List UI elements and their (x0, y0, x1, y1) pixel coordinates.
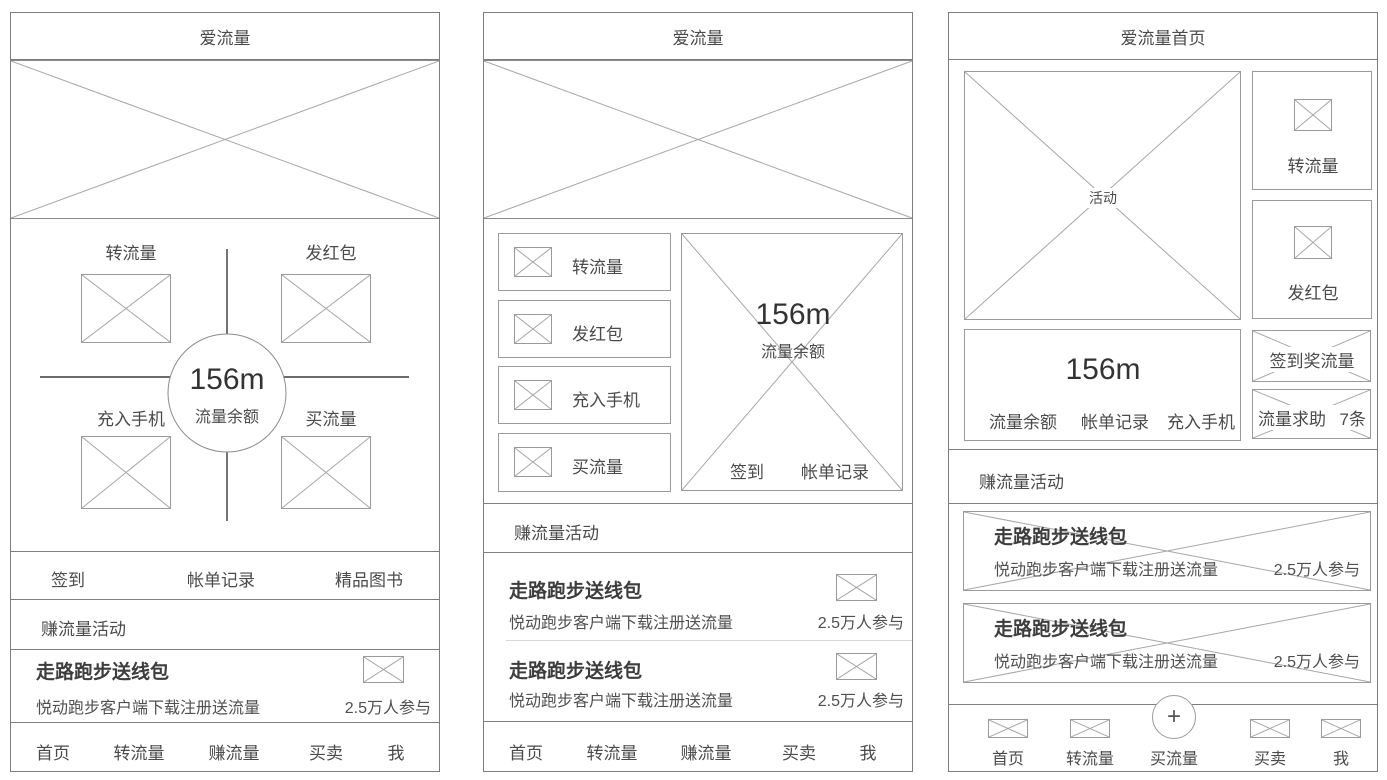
banner-label: 活动 (1084, 188, 1122, 208)
quick-links-row: 签到 帐单记录 精品图书 (11, 551, 439, 599)
nav-transfer[interactable]: 转流量 (1066, 745, 1114, 769)
x-placeholder-icon (515, 315, 551, 343)
link-premium-books[interactable]: 精品图书 (335, 566, 403, 591)
activity-participants: 2.5万人参与 (818, 687, 904, 711)
titlebar: 爱流量 (484, 13, 912, 60)
menu-buy-button[interactable]: 买流量 (498, 433, 671, 492)
traffic-help-label: 流量求助 (1258, 410, 1326, 429)
activity-thumb-placeholder (363, 656, 404, 683)
x-placeholder-icon (1251, 720, 1289, 737)
balance-card: 156m 流量余额 签到 帐单记录 (681, 233, 903, 491)
earn-section-header: 赚流量活动 (11, 599, 439, 649)
side-transfer-button[interactable]: 转流量 (1252, 71, 1372, 190)
earn-section-header: 赚流量活动 (949, 449, 1377, 504)
activity-title: 走路跑步送线包 (994, 614, 1127, 641)
activity-thumb-placeholder (836, 574, 877, 601)
activity-card[interactable]: 走路跑步送线包 悦动跑步客户端下载注册送流量 2.5万人参与 (963, 603, 1371, 683)
banner-image-placeholder (11, 60, 439, 219)
home-nav-icon[interactable] (988, 719, 1028, 738)
nav-home[interactable]: 首页 (509, 739, 543, 764)
screen-home-final: 爱流量首页 活动 转流量 发红包 156m 流量余额 帐单记录 充入手机 签到奖… (948, 12, 1378, 772)
x-placeholder-icon (682, 234, 902, 490)
section-header-label: 赚流量活动 (514, 519, 599, 544)
activity-title: 走路跑步送线包 (509, 656, 642, 683)
nav-trade[interactable]: 买卖 (1254, 745, 1286, 769)
traffic-help-group: 流量求助 7条 (1253, 405, 1371, 430)
x-placeholder-icon (82, 437, 170, 508)
screen-home-v2: 爱流量 转流量 发红包 充入手机 买流量 156m 流量余额 签到 帐单记录 (483, 12, 913, 772)
side-action-label: 发红包 (1288, 279, 1339, 304)
nav-me[interactable]: 我 (860, 739, 877, 764)
activity-thumb-placeholder (836, 653, 877, 680)
link-signin[interactable]: 签到 (730, 458, 764, 483)
x-placeholder-icon (989, 720, 1027, 737)
menu-label: 转流量 (572, 253, 623, 278)
x-placeholder-icon (837, 654, 876, 679)
fab-buy-button[interactable]: + (1152, 695, 1196, 739)
titlebar: 爱流量首页 (949, 13, 1377, 60)
earn-section-header: 赚流量活动 (484, 503, 912, 553)
x-placeholder-icon (282, 437, 370, 508)
activity-card[interactable]: 走路跑步送线包 悦动跑步客户端下载注册送流量 2.5万人参与 (963, 511, 1371, 591)
balance-label: 流量余额 (761, 338, 825, 362)
activity-participants: 2.5万人参与 (345, 694, 431, 718)
action-label-redpacket: 发红包 (306, 239, 357, 264)
x-placeholder-icon (515, 381, 551, 409)
menu-label: 买流量 (572, 453, 623, 478)
bottom-nav: + 首页 转流量 买流量 买卖 我 (949, 704, 1377, 773)
balance-value: 156m (755, 298, 830, 332)
activity-row[interactable]: 走路跑步送线包 悦动跑步客户端下载注册送流量 2.5万人参与 (484, 553, 912, 640)
x-placeholder-icon (1071, 720, 1109, 737)
balance-label: 流量余额 (195, 403, 259, 427)
activity-participants: 2.5万人参与 (1274, 648, 1360, 672)
nav-trade[interactable]: 买卖 (309, 739, 343, 764)
menu-recharge-button[interactable]: 充入手机 (498, 366, 671, 424)
section-header-label: 赚流量活动 (979, 468, 1064, 493)
nav-home[interactable]: 首页 (36, 739, 70, 764)
redpacket-image-placeholder[interactable] (281, 274, 371, 343)
activity-title: 走路跑步送线包 (509, 576, 642, 603)
activity-card[interactable]: 走路跑步送线包 悦动跑步客户端下载注册送流量 2.5万人参与 (11, 649, 439, 722)
side-action-label: 转流量 (1288, 152, 1339, 177)
bottom-nav: 首页 转流量 赚流量 买卖 我 (484, 721, 912, 773)
page-title: 爱流量 (200, 24, 251, 49)
menu-label: 发红包 (572, 320, 623, 345)
quad-action-section: 转流量 发红包 156m 流量余额 充入手机 买流量 (11, 219, 439, 551)
nav-me[interactable]: 我 (388, 739, 405, 764)
side-redpacket-button[interactable]: 发红包 (1252, 200, 1372, 319)
nav-me[interactable]: 我 (1333, 745, 1349, 769)
x-placeholder-icon (837, 575, 876, 600)
x-placeholder-icon (515, 448, 551, 476)
nav-transfer[interactable]: 转流量 (587, 739, 638, 764)
activity-participants: 2.5万人参与 (1274, 556, 1360, 580)
activity-desc: 悦动跑步客户端下载注册送流量 (509, 687, 733, 711)
activity-desc: 悦动跑步客户端下载注册送流量 (994, 556, 1218, 580)
activity-banner-placeholder[interactable]: 活动 (964, 71, 1241, 320)
balance-card: 156m 流量余额 帐单记录 充入手机 (964, 329, 1241, 441)
redpacket-icon-placeholder (514, 314, 552, 344)
screen-home-v1: 爱流量 转流量 发红包 156m 流量余额 充入手机 买流量 签到 帐单记录 (10, 12, 440, 772)
link-balance[interactable]: 流量余额 (989, 408, 1057, 433)
x-placeholder-icon (1322, 720, 1360, 737)
bottom-nav: 首页 转流量 赚流量 买卖 我 (11, 722, 439, 773)
recharge-image-placeholder[interactable] (81, 436, 171, 509)
wireframe-canvas: 爱流量 转流量 发红包 156m 流量余额 充入手机 买流量 签到 帐单记录 (0, 0, 1387, 780)
transfer-nav-icon[interactable] (1070, 719, 1110, 738)
action-label-buy: 买流量 (306, 405, 357, 430)
buy-icon-placeholder (514, 447, 552, 477)
balance-value: 156m (189, 363, 264, 397)
x-placeholder-icon (515, 248, 551, 276)
link-recharge[interactable]: 充入手机 (1167, 408, 1235, 433)
signin-reward-button[interactable]: 签到奖流量 (1252, 330, 1371, 382)
trade-nav-icon[interactable] (1250, 719, 1290, 738)
activity-desc: 悦动跑步客户端下载注册送流量 (994, 648, 1218, 672)
action-label-recharge: 充入手机 (97, 405, 165, 430)
buy-image-placeholder[interactable] (281, 436, 371, 509)
menu-redpacket-button[interactable]: 发红包 (498, 300, 671, 358)
link-signin[interactable]: 签到 (51, 566, 85, 591)
me-nav-icon[interactable] (1321, 719, 1361, 738)
transfer-icon-placeholder (1294, 99, 1332, 131)
recharge-icon-placeholder (514, 380, 552, 410)
plus-icon: + (1167, 703, 1181, 731)
activity-desc: 悦动跑步客户端下载注册送流量 (509, 609, 733, 633)
titlebar: 爱流量 (11, 13, 439, 60)
nav-home[interactable]: 首页 (992, 745, 1024, 769)
transfer-icon-placeholder (514, 247, 552, 277)
link-bill-records[interactable]: 帐单记录 (1081, 408, 1149, 433)
nav-trade[interactable]: 买卖 (782, 739, 816, 764)
menu-label: 充入手机 (572, 386, 640, 411)
activity-desc: 悦动跑步客户端下载注册送流量 (36, 694, 260, 718)
x-placeholder-icon (364, 657, 403, 682)
redpacket-icon-placeholder (1294, 226, 1332, 259)
banner-image-placeholder (484, 60, 912, 219)
menu-transfer-button[interactable]: 转流量 (498, 233, 671, 291)
transfer-image-placeholder[interactable] (81, 274, 171, 343)
link-bill-records[interactable]: 帐单记录 (801, 458, 869, 483)
action-label-transfer: 转流量 (106, 239, 157, 264)
help-count-badge: 7条 (1339, 410, 1365, 429)
x-placeholder-icon (1295, 100, 1331, 130)
page-title: 爱流量首页 (1121, 24, 1206, 49)
nav-earn[interactable]: 赚流量 (209, 739, 260, 764)
section-header-label: 赚流量活动 (41, 615, 126, 640)
nav-buy[interactable]: 买流量 (1150, 745, 1198, 769)
activity-participants: 2.5万人参与 (818, 609, 904, 633)
activity-title: 走路跑步送线包 (36, 657, 169, 684)
activity-row[interactable]: 走路跑步送线包 悦动跑步客户端下载注册送流量 2.5万人参与 (484, 641, 912, 721)
x-placeholder-icon (1295, 227, 1331, 258)
nav-earn[interactable]: 赚流量 (681, 739, 732, 764)
activity-title: 走路跑步送线包 (994, 522, 1127, 549)
balance-value: 156m (1065, 353, 1140, 387)
page-title: 爱流量 (673, 24, 724, 49)
signin-reward-label: 签到奖流量 (1265, 347, 1360, 372)
x-placeholder-icon (11, 61, 439, 218)
nav-transfer[interactable]: 转流量 (114, 739, 165, 764)
x-placeholder-icon (282, 275, 370, 342)
link-bill-records[interactable]: 帐单记录 (187, 566, 255, 591)
traffic-help-button[interactable]: 流量求助 7条 (1252, 389, 1371, 439)
x-placeholder-icon (82, 275, 170, 342)
x-placeholder-icon (484, 61, 912, 218)
